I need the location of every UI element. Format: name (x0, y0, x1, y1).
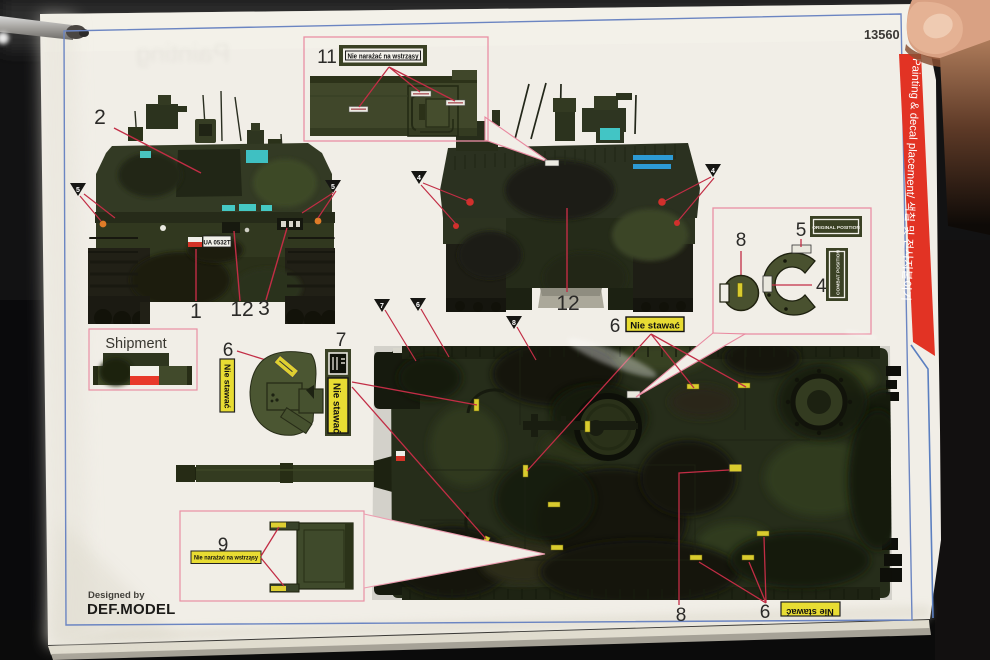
svg-text:4: 4 (711, 168, 715, 175)
svg-text:1: 1 (190, 300, 202, 323)
svg-text:8: 8 (736, 230, 747, 251)
svg-text:7: 7 (380, 303, 384, 310)
svg-text:8: 8 (676, 605, 687, 626)
svg-text:4: 4 (417, 175, 421, 182)
svg-text:ORIGINAL POSITION: ORIGINAL POSITION (812, 225, 860, 231)
svg-text:8: 8 (512, 320, 516, 327)
svg-text:7: 7 (336, 330, 347, 351)
svg-text:Painting: Painting (136, 38, 230, 68)
svg-text:Designed by: Designed by (88, 590, 145, 601)
svg-text:6: 6 (223, 340, 234, 361)
svg-text:3: 3 (258, 297, 270, 320)
svg-text:6: 6 (760, 602, 771, 623)
svg-text:Nie narażać na wstrząsy: Nie narażać na wstrząsy (348, 54, 419, 61)
svg-text:Nie stawać: Nie stawać (331, 383, 342, 434)
svg-text:DEF.MODEL: DEF.MODEL (87, 601, 175, 618)
svg-text:6: 6 (610, 316, 621, 337)
svg-text:Nie stawać: Nie stawać (223, 364, 233, 409)
svg-text:5: 5 (796, 220, 807, 241)
svg-text:4: 4 (816, 276, 827, 297)
svg-text:5: 5 (76, 187, 80, 194)
svg-text:UA 0532T: UA 0532T (203, 241, 230, 247)
svg-text:13560: 13560 (864, 27, 900, 42)
svg-text:Nie narażać na wstrząsy: Nie narażać na wstrząsy (194, 555, 258, 562)
svg-text:11: 11 (317, 47, 337, 68)
svg-text:Nie stawać: Nie stawać (786, 607, 834, 617)
svg-text:COMBAT POSITION: COMBAT POSITION (836, 250, 842, 295)
svg-text:Nie stawać: Nie stawać (630, 321, 680, 332)
svg-text:Shipment: Shipment (105, 336, 166, 352)
svg-text:2: 2 (94, 106, 106, 129)
svg-text:12: 12 (556, 292, 579, 315)
svg-text:12: 12 (230, 298, 253, 321)
svg-text:5: 5 (331, 184, 335, 191)
svg-text:6: 6 (416, 302, 420, 309)
